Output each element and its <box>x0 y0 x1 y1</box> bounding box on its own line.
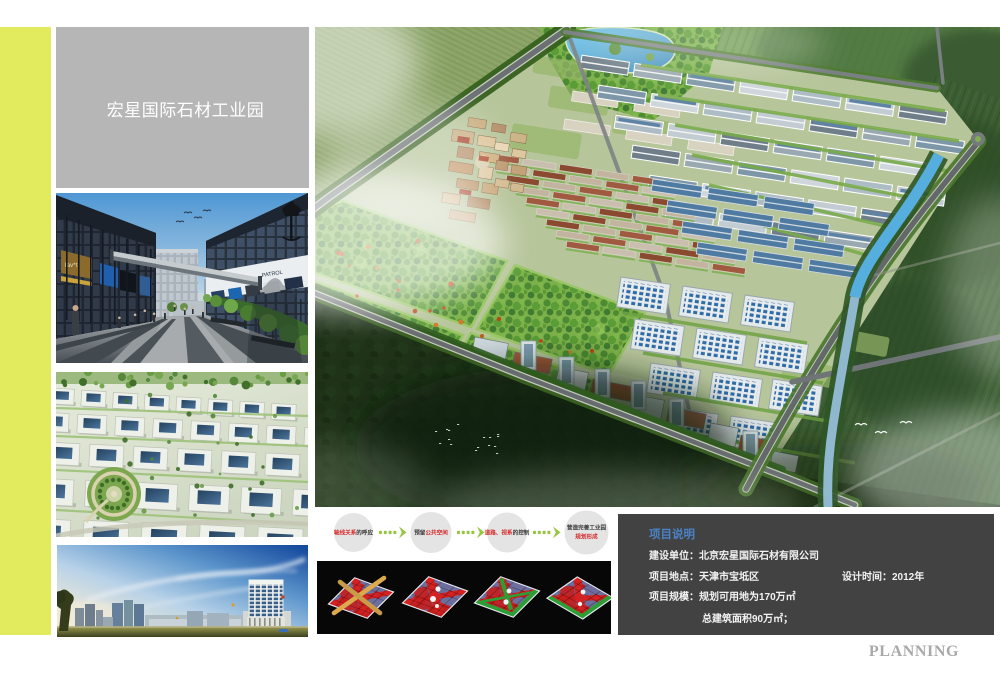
svg-text:道路、视系的控制: 道路、视系的控制 <box>485 529 530 537</box>
svg-text:规划形成: 规划形成 <box>575 533 598 541</box>
svg-text:轴线关系的呼应: 轴线关系的呼应 <box>334 529 374 537</box>
svg-text:预留公共空间: 预留公共空间 <box>414 529 448 537</box>
svg-text:营造完善工业园: 营造完善工业园 <box>567 524 607 532</box>
